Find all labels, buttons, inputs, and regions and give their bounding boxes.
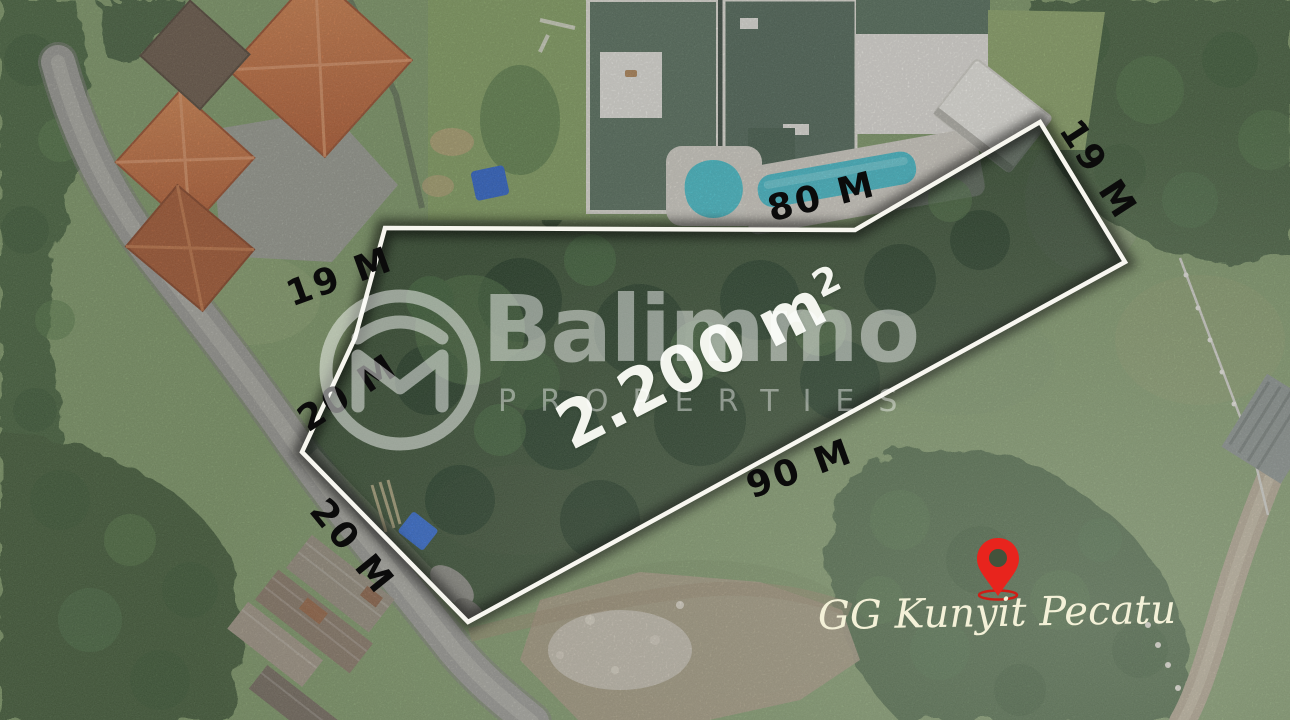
aerial-property-photo: 80 M 19 M 19 M 20 M 20 M 90 M 2.200 m2 B… [0, 0, 1290, 720]
atmospheric-haze [0, 0, 1290, 720]
aerial-photo-scene [0, 0, 1290, 720]
